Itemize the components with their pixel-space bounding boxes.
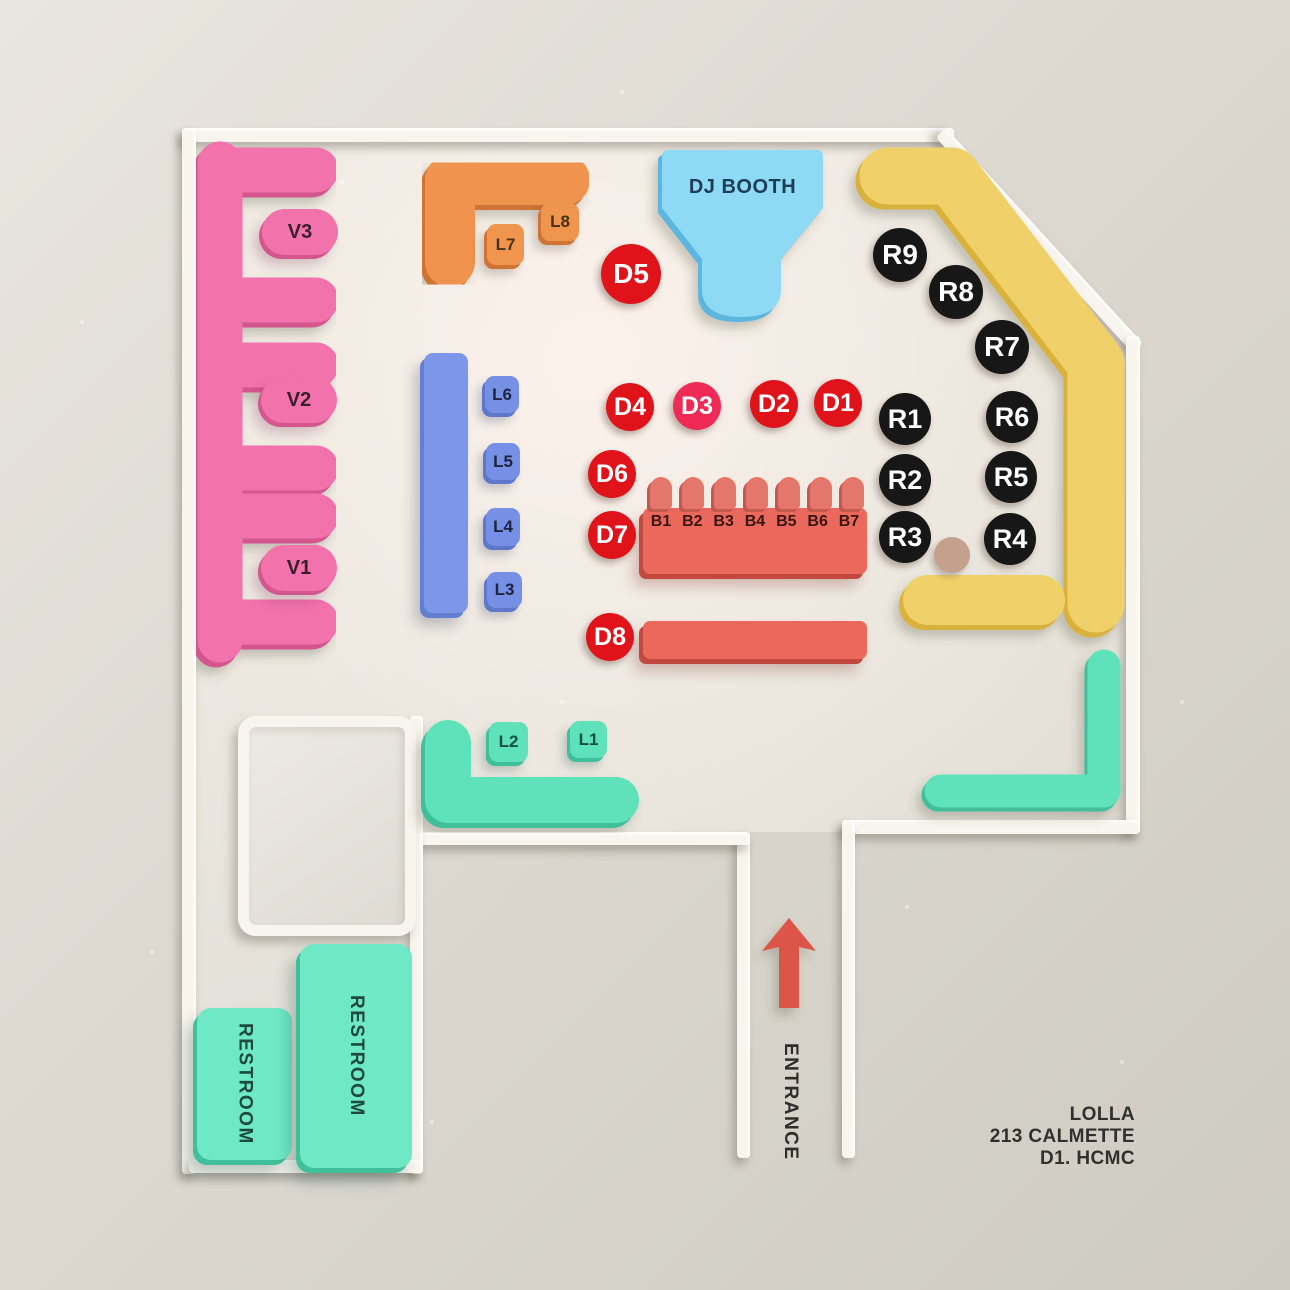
seat-l3[interactable]: L3 — [487, 572, 522, 608]
bar-stool-b4[interactable] — [746, 477, 768, 509]
bar-stool-b5[interactable] — [778, 477, 800, 509]
booth-v2-pill[interactable]: V2 — [261, 377, 337, 423]
table-r2[interactable]: R2 — [879, 454, 931, 506]
table-r1[interactable]: R1 — [879, 393, 931, 445]
table-r8[interactable]: R8 — [929, 265, 983, 319]
bar-stool-b2[interactable] — [682, 477, 704, 509]
bar-label-b4[interactable]: B4 — [740, 513, 770, 531]
bar-bench-lower — [643, 621, 867, 659]
seat-l4[interactable]: L4 — [486, 508, 520, 546]
seat-l1[interactable]: L1 — [570, 721, 607, 758]
table-d8[interactable]: D8 — [586, 613, 634, 661]
restroom-right-label: RESTROOM — [345, 995, 367, 1117]
venue-name: LOLLA — [915, 1104, 1135, 1126]
table-r6[interactable]: R6 — [986, 391, 1038, 443]
venue-address-block: LOLLA 213 CALMETTE D1. HCMC — [915, 1104, 1135, 1171]
bar-label-b5[interactable]: B5 — [771, 513, 801, 531]
bar-label-b6[interactable]: B6 — [803, 513, 833, 531]
booth-v3-pill[interactable]: V3 — [262, 209, 338, 255]
venue-address-line1: 213 CALMETTE — [915, 1126, 1135, 1148]
booth-v1-pill[interactable]: V1 — [261, 545, 337, 591]
seat-l6[interactable]: L6 — [485, 376, 519, 413]
table-d2[interactable]: D2 — [750, 380, 798, 428]
dj-booth-label: DJ BOOTH — [662, 176, 823, 199]
table-d3[interactable]: D3 — [673, 382, 721, 430]
table-d6[interactable]: D6 — [588, 450, 636, 498]
side-table-dot — [934, 537, 970, 573]
bar-label-b1[interactable]: B1 — [646, 513, 676, 531]
table-d4[interactable]: D4 — [606, 383, 654, 431]
table-r9[interactable]: R9 — [873, 228, 927, 282]
seat-l5[interactable]: L5 — [486, 443, 520, 480]
entrance-arrow-icon — [762, 918, 816, 1008]
bar-label-b2[interactable]: B2 — [677, 513, 707, 531]
restroom-left: RESTROOM — [197, 1008, 292, 1160]
teal-lounge-right[interactable] — [941, 666, 1104, 791]
entrance-text: ENTRANCE — [779, 1043, 801, 1161]
table-r5[interactable]: R5 — [985, 451, 1037, 503]
venue-floor-map: DJ BOOTH V3 V2 V1 L8 L7 L6 L5 L4 L3 L2 L… — [0, 0, 1290, 1290]
table-r3[interactable]: R3 — [879, 511, 931, 563]
restroom-right: RESTROOM — [300, 944, 412, 1168]
bar-stool-b6[interactable] — [810, 477, 832, 509]
bar-seat-labels: B1 B2 B3 B4 B5 B6 B7 — [646, 513, 864, 531]
seat-l7[interactable]: L7 — [487, 224, 524, 265]
table-d5[interactable]: D5 — [601, 244, 661, 304]
bar-stool-b7[interactable] — [842, 477, 864, 509]
bar-stool-b1[interactable] — [650, 477, 672, 509]
entrance-label: ENTRANCE — [775, 1032, 805, 1172]
bar-label-b3[interactable]: B3 — [709, 513, 739, 531]
bar-stool-b3[interactable] — [714, 477, 736, 509]
seat-l8[interactable]: L8 — [541, 203, 579, 241]
table-d1[interactable]: D1 — [814, 379, 862, 427]
table-r7[interactable]: R7 — [975, 320, 1029, 374]
teal-lounge-structures[interactable] — [444, 666, 1104, 805]
bench-blue — [424, 353, 468, 613]
venue-address-line2: D1. HCMC — [915, 1148, 1135, 1170]
restroom-left-label: RESTROOM — [234, 1023, 256, 1145]
table-d7[interactable]: D7 — [588, 511, 636, 559]
seat-l2[interactable]: L2 — [489, 722, 528, 762]
table-r4[interactable]: R4 — [984, 513, 1036, 565]
bar-label-b7[interactable]: B7 — [834, 513, 864, 531]
